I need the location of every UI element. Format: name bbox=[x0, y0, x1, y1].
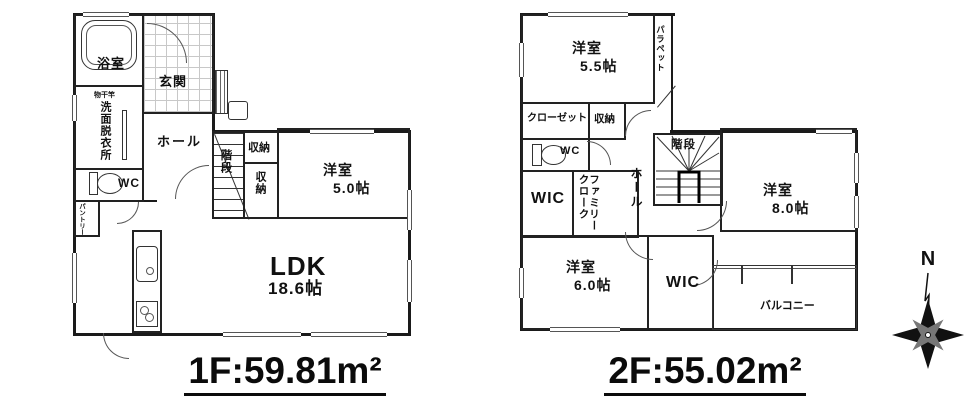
label-bedroom8-size: 8.0帖 bbox=[772, 201, 809, 215]
floor1-area-label: 1F:59.81m² bbox=[140, 350, 430, 392]
window bbox=[72, 253, 77, 303]
door-arc-wc2f bbox=[587, 141, 611, 165]
label-bedroom55-name: 洋室 bbox=[572, 41, 602, 55]
label-wic-lower: WIC bbox=[666, 275, 700, 291]
kitchen-sink-icon bbox=[136, 246, 158, 282]
door-arc-backdoor bbox=[103, 333, 129, 359]
window bbox=[223, 332, 301, 337]
laundry-pole-icon bbox=[122, 110, 127, 160]
room-balcony bbox=[712, 265, 857, 330]
window bbox=[310, 129, 374, 134]
label-pantry: パントリー bbox=[77, 203, 84, 236]
window bbox=[519, 268, 524, 298]
window bbox=[407, 190, 412, 230]
label-hall2f: ホール bbox=[630, 167, 642, 209]
label-closet: クローゼット bbox=[527, 114, 587, 124]
label-stairs: 階段 bbox=[219, 149, 231, 174]
floorplan-canvas: 浴室 玄関 物干竿 洗面脱衣所 ホール WC パントリー 階段 収納 収納 洋室… bbox=[0, 0, 973, 403]
label-washroom: 洗面脱衣所 bbox=[99, 101, 110, 161]
label-bath: 浴室 bbox=[97, 57, 125, 70]
window bbox=[854, 153, 859, 183]
label-storage-a: 収納 bbox=[248, 143, 270, 154]
label-bedroom6-size: 6.0帖 bbox=[574, 278, 611, 292]
floor1-plan: 浴室 玄関 物干竿 洗面脱衣所 ホール WC パントリー 階段 収納 収納 洋室… bbox=[73, 13, 411, 336]
label-stairs2f: 階段 bbox=[671, 140, 696, 152]
window bbox=[816, 129, 852, 134]
label-wc: WC bbox=[118, 177, 140, 189]
label-ldk-size: 18.6帖 bbox=[268, 280, 323, 297]
window bbox=[548, 12, 628, 17]
label-ldk-name: LDK bbox=[270, 253, 326, 279]
label-parapet: パラペット bbox=[656, 25, 665, 73]
label-bedroom5-size: 5.0帖 bbox=[333, 181, 370, 195]
door-arc-hall bbox=[175, 165, 209, 199]
label-storage-b: 収納 bbox=[254, 171, 265, 195]
label-family-cloak: ファミリークローク bbox=[578, 174, 599, 234]
window bbox=[519, 43, 524, 77]
compass: N bbox=[888, 248, 968, 378]
label-entrance: 玄関 bbox=[159, 75, 187, 88]
north-label: N bbox=[888, 248, 968, 271]
stove-icon bbox=[136, 301, 158, 327]
label-laundry-pole: 物干竿 bbox=[94, 92, 115, 99]
label-storage2f: 収納 bbox=[594, 114, 615, 125]
porch-stone bbox=[228, 101, 248, 120]
window bbox=[550, 327, 620, 332]
room-bedroom8 bbox=[720, 128, 857, 232]
room-stairs bbox=[212, 131, 245, 219]
porch-steps bbox=[215, 70, 228, 114]
window bbox=[311, 332, 387, 337]
floor2-plan: 洋室 5.5帖 パラペット クローゼット 収納 WC WIC ファミリークローク… bbox=[520, 13, 858, 331]
label-balcony: バルコニー bbox=[760, 301, 815, 312]
window bbox=[407, 260, 412, 302]
balcony-post bbox=[791, 266, 793, 284]
compass-rose-icon bbox=[889, 271, 967, 371]
balcony-post bbox=[741, 266, 743, 284]
door-arc-wc bbox=[117, 202, 139, 224]
label-wic-upper: WIC bbox=[531, 191, 565, 207]
faucet-icon bbox=[146, 267, 154, 275]
label-bedroom8-name: 洋室 bbox=[763, 183, 793, 197]
label-hall: ホール bbox=[157, 135, 202, 148]
label-bedroom55-size: 5.5帖 bbox=[580, 59, 617, 73]
balcony-rail bbox=[713, 268, 856, 269]
label-bedroom6-name: 洋室 bbox=[566, 260, 596, 274]
burner-icon bbox=[145, 313, 154, 322]
wall-parapet bbox=[671, 13, 673, 133]
window bbox=[854, 196, 859, 228]
window bbox=[83, 12, 129, 17]
label-bedroom5-name: 洋室 bbox=[323, 163, 353, 177]
floor2-area-label: 2F:55.02m² bbox=[560, 350, 850, 392]
door-arc bbox=[625, 110, 651, 136]
window bbox=[72, 95, 77, 121]
label-wc2f: WC bbox=[560, 146, 580, 157]
